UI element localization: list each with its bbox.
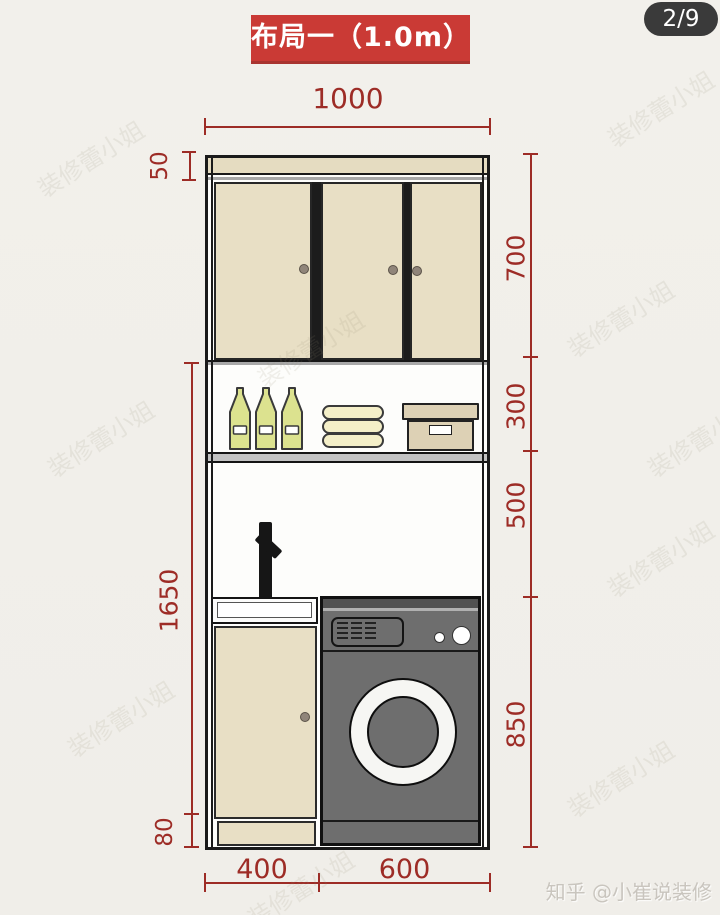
washer-dial xyxy=(452,626,471,645)
watermark-text: 装修蕾小姐 xyxy=(30,111,150,204)
washer-base-line xyxy=(323,820,478,822)
watermark-text: 装修蕾小姐 xyxy=(60,671,180,764)
zhihu-credit: 知乎 @小崔说装修 xyxy=(546,876,712,905)
watermark-text: 装修蕾小姐 xyxy=(600,61,720,154)
dim-label-1000: 1000 xyxy=(205,82,491,115)
washer-panel-divider xyxy=(323,650,478,652)
storage-box-label xyxy=(429,425,452,435)
cabinet-frame-line-left xyxy=(211,158,213,847)
dim-line-top xyxy=(205,126,491,128)
watermark-text: 装修蕾小姐 xyxy=(40,391,160,484)
dim-label-80: 80 xyxy=(152,810,178,854)
door-knob xyxy=(412,266,422,276)
dim-tick xyxy=(523,153,538,155)
folded-towel xyxy=(322,405,384,420)
sink-cabinet-door xyxy=(214,626,317,819)
washer-door-glass xyxy=(367,696,439,768)
cabinet-plinth xyxy=(217,821,316,846)
dim-tick xyxy=(523,356,538,358)
shelf-board xyxy=(208,452,487,463)
washing-machine-top-trim xyxy=(323,608,478,611)
dim-label-700: 700 xyxy=(502,219,531,299)
dim-tick xyxy=(182,151,196,153)
dim-tick xyxy=(184,846,199,848)
sink-basin-inner xyxy=(217,602,312,618)
storage-box-lid xyxy=(402,403,479,420)
folded-towel xyxy=(322,419,384,434)
door-knob xyxy=(300,712,310,722)
cabinet-frame-line-right xyxy=(482,158,484,847)
door-knob xyxy=(388,265,398,275)
watermark-text: 装修蕾小姐 xyxy=(640,391,720,484)
page-indicator-badge: 2/9 xyxy=(644,2,718,36)
dim-tick xyxy=(523,450,538,452)
watermark-text: 装修蕾小姐 xyxy=(560,731,680,824)
dim-line-1650 xyxy=(191,363,193,815)
watermark-text: 装修蕾小姐 xyxy=(600,511,720,604)
dim-tick xyxy=(523,596,538,598)
top-panel-shadow-line xyxy=(208,177,487,180)
dim-label-300: 300 xyxy=(502,367,531,447)
dim-tick xyxy=(489,118,491,135)
cabinet-top-panel xyxy=(208,158,487,175)
dim-label-1650: 1650 xyxy=(155,557,184,645)
dim-tick xyxy=(489,873,491,892)
screenshot-root: 布局一（1.0m） 2/9 xyxy=(0,0,720,915)
detergent-bottles xyxy=(228,386,306,452)
washing-machine-top xyxy=(323,599,478,608)
dim-label-50: 50 xyxy=(147,144,173,188)
dim-label-500: 500 xyxy=(502,466,531,546)
washer-button xyxy=(434,632,445,643)
title-banner: 布局一（1.0m） xyxy=(251,15,470,64)
dim-tick xyxy=(523,846,538,848)
dim-line-80 xyxy=(191,815,193,848)
dim-tick xyxy=(184,362,199,364)
dim-line-50 xyxy=(189,152,191,181)
folded-towel xyxy=(322,433,384,448)
dim-tick xyxy=(204,118,206,135)
door-knob xyxy=(299,264,309,274)
towel-stack xyxy=(322,406,384,448)
drawer-vents xyxy=(337,622,378,641)
dim-tick xyxy=(182,179,196,181)
dim-label-850: 850 xyxy=(502,685,531,765)
watermark-text: 装修蕾小姐 xyxy=(560,271,680,364)
